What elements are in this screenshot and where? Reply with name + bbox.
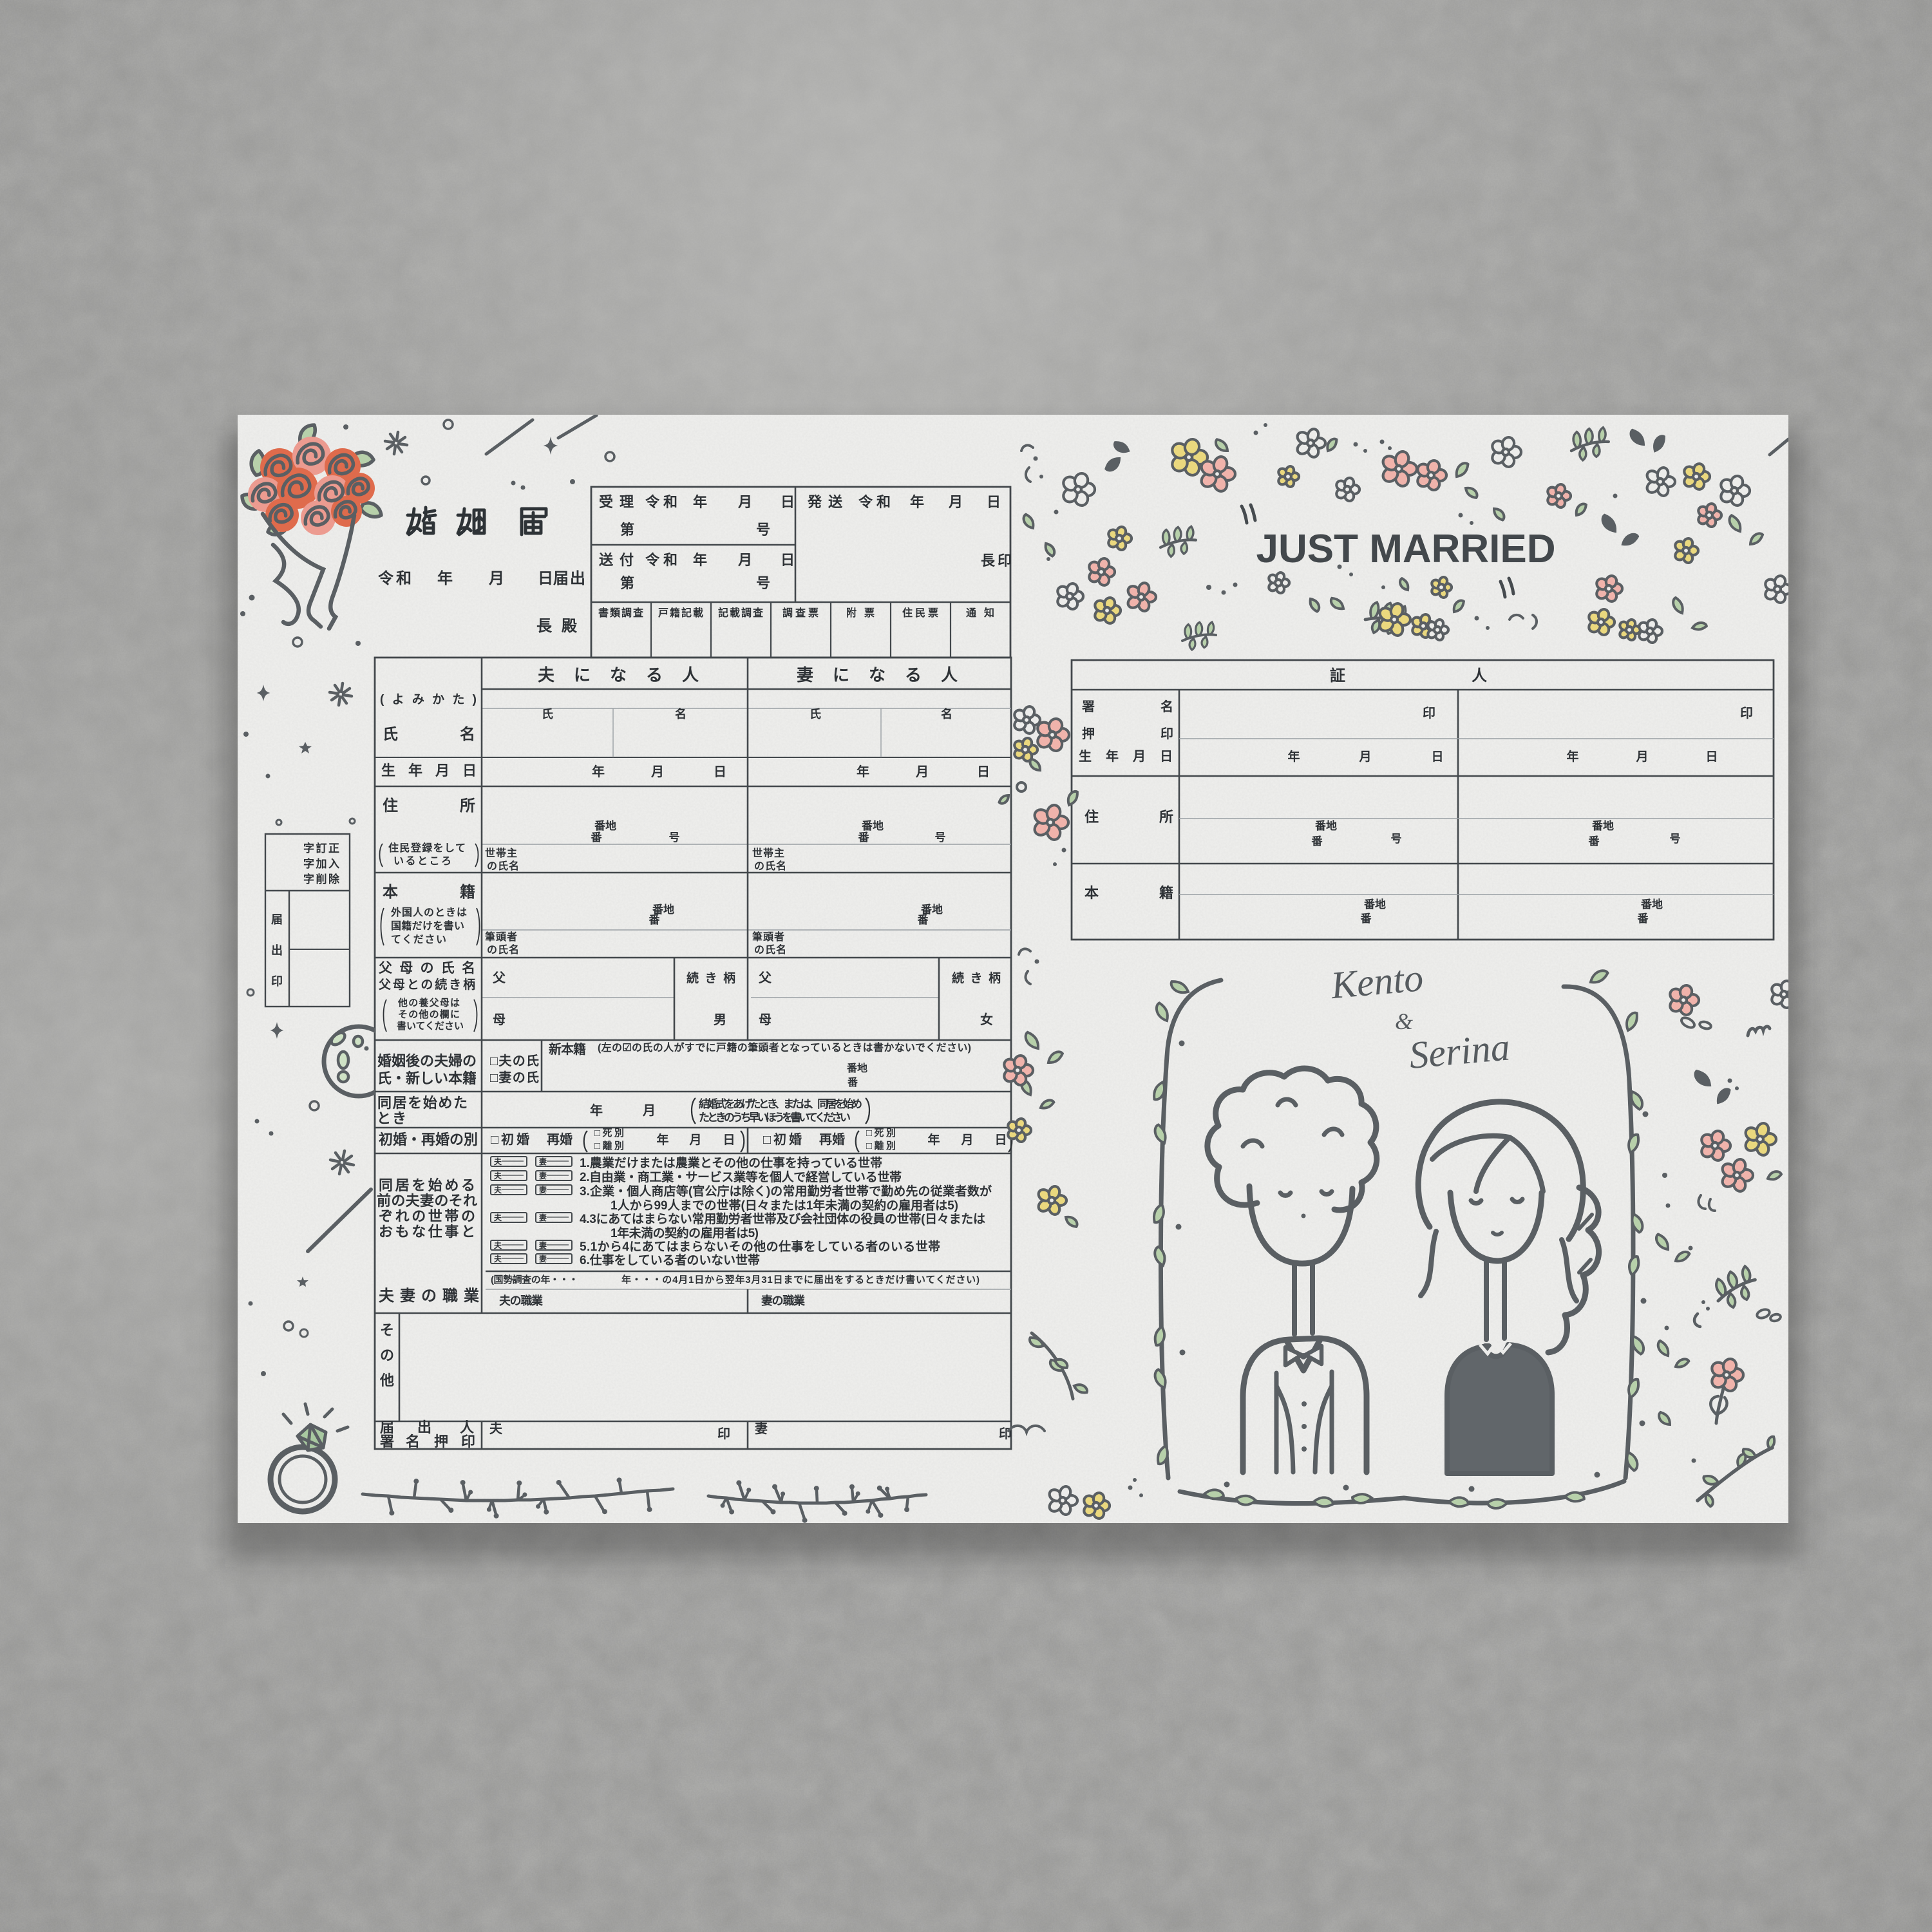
svg-text:押: 押	[434, 1434, 448, 1450]
svg-text:番: 番	[649, 914, 661, 926]
svg-text:押: 押	[1082, 726, 1095, 741]
svg-text:号: 号	[1670, 833, 1681, 845]
svg-text:印: 印	[717, 1426, 730, 1441]
svg-text:年: 年	[857, 764, 869, 779]
svg-text:年: 年	[590, 1103, 603, 1118]
svg-text:母: 母	[493, 1013, 506, 1027]
svg-text:の氏名: の氏名	[754, 943, 786, 956]
svg-text:年: 年	[693, 552, 707, 568]
svg-text:年: 年	[437, 569, 453, 587]
svg-text:日: 日	[781, 494, 795, 510]
svg-text:印: 印	[461, 1434, 475, 1450]
svg-text:4.3にあてはまらない常用勤労者世帯及び会社団体の役員の世帯: 4.3にあてはまらない常用勤労者世帯及び会社団体の役員の世帯(日々または	[580, 1211, 985, 1226]
svg-text:の氏名: の氏名	[754, 860, 786, 872]
svg-text:Serina: Serina	[1407, 1025, 1511, 1076]
svg-text:号: 号	[1391, 833, 1402, 845]
svg-text:籍: 籍	[460, 883, 475, 901]
svg-text:2.自由業・商工業・サービス業等を個人で経営している世帯: 2.自由業・商工業・サービス業等を個人で経営している世帯	[580, 1170, 902, 1184]
svg-text:妻: 妻	[539, 1213, 547, 1222]
svg-text:夫: 夫	[493, 1171, 502, 1180]
svg-text:月: 月	[650, 765, 664, 779]
svg-text:1年未満の契約の雇用者は5): 1年未満の契約の雇用者は5)	[611, 1226, 759, 1240]
svg-text:3.企業・個人商店等(官公庁は除く)の常用勤労者世帯で勤め先: 3.企業・個人商店等(官公庁は除く)の常用勤労者世帯で勤め先の従業者数が	[580, 1184, 992, 1198]
svg-text:妻: 妻	[539, 1157, 547, 1166]
svg-text:月: 月	[688, 1133, 701, 1147]
svg-text:本: 本	[383, 884, 398, 901]
svg-text:月: 月	[642, 1104, 656, 1118]
svg-text:年: 年	[910, 494, 924, 510]
svg-text:籍: 籍	[1159, 885, 1173, 901]
svg-text:結婚式をあげたとき、または、同居を始め: 結婚式をあげたとき、または、同居を始め	[699, 1097, 862, 1110]
svg-text:日: 日	[781, 552, 795, 568]
svg-text:番: 番	[1588, 835, 1600, 848]
svg-text:氏・新しい本籍: 氏・新しい本籍	[377, 1070, 477, 1086]
svg-text:印: 印	[1740, 706, 1753, 721]
svg-text:筆頭者: 筆頭者	[752, 931, 784, 943]
svg-text:日: 日	[1431, 750, 1443, 764]
svg-text:番: 番	[847, 1076, 858, 1088]
svg-text:名: 名	[675, 707, 687, 721]
svg-text:年: 年	[1566, 749, 1578, 764]
svg-text:6.仕事をしている者のいない世帯: 6.仕事をしている者のいない世帯	[580, 1253, 760, 1267]
svg-text:夫: 夫	[493, 1240, 502, 1250]
svg-text:番地: 番地	[861, 819, 884, 832]
svg-text:(左の☑の氏の人がすでに戸籍の筆頭者となっているときは書かな: (左の☑の氏の人がすでに戸籍の筆頭者となっているときは書かないでください)	[598, 1041, 971, 1054]
svg-text:妻: 妻	[539, 1185, 547, 1195]
svg-text:日: 日	[987, 494, 1001, 510]
svg-text:名: 名	[941, 707, 952, 721]
svg-text:本: 本	[1084, 885, 1099, 901]
svg-text:番地: 番地	[594, 819, 616, 832]
svg-text:署: 署	[379, 1434, 394, 1450]
svg-text:夫: 夫	[493, 1254, 502, 1264]
svg-text:5.1から4にあてはまらないその他の仕事をしている者のいる世: 5.1から4にあてはまらないその他の仕事をしている者のいる世帯	[580, 1239, 940, 1254]
svg-text:日: 日	[538, 570, 553, 587]
svg-text:□妻の氏: □妻の氏	[490, 1070, 539, 1085]
svg-text:番: 番	[1311, 835, 1323, 848]
svg-text:名: 名	[406, 1434, 420, 1450]
svg-text:1人から99人までの世帯(日々または1年未満の契約の雇用者は: 1人から99人までの世帯(日々または1年未満の契約の雇用者は5)	[611, 1198, 958, 1213]
svg-text:番地: 番地	[1640, 898, 1663, 911]
svg-text:名: 名	[460, 725, 475, 743]
svg-text:妻: 妻	[539, 1254, 547, 1264]
svg-text:日: 日	[714, 765, 726, 779]
svg-text:Kento: Kento	[1329, 956, 1425, 1007]
svg-text:住: 住	[383, 797, 398, 815]
svg-text:初婚・再婚の別: 初婚・再婚の別	[379, 1132, 478, 1148]
svg-text:印: 印	[1423, 706, 1435, 721]
svg-text:の氏名: の氏名	[487, 860, 519, 872]
svg-text:月: 月	[737, 552, 752, 568]
svg-text:JUST MARRIED: JUST MARRIED	[1256, 527, 1555, 571]
svg-text:母: 母	[759, 1013, 772, 1027]
svg-text:続き柄: 続き柄	[687, 971, 735, 985]
svg-text:妻: 妻	[539, 1240, 547, 1250]
svg-text:字訂正: 字訂正	[303, 842, 339, 855]
svg-text:夫の職業: 夫の職業	[499, 1294, 544, 1307]
svg-text:の: の	[380, 1347, 394, 1363]
svg-text:番地: 番地	[1363, 898, 1386, 911]
svg-text:夫妻の職業: 夫妻の職業	[379, 1287, 479, 1305]
svg-text:□死別: □死別	[594, 1128, 624, 1139]
svg-text:日: 日	[977, 765, 990, 779]
svg-text:日: 日	[723, 1133, 735, 1147]
svg-text:署: 署	[1082, 699, 1095, 714]
svg-text:名: 名	[1160, 699, 1173, 714]
svg-text:住民登録をして: 住民登録をして	[388, 842, 466, 854]
svg-text:番: 番	[1637, 913, 1649, 925]
svg-text:氏: 氏	[542, 708, 553, 721]
svg-text:月: 月	[1358, 750, 1371, 764]
svg-text:字削除: 字削除	[303, 873, 340, 885]
svg-text:書いてください: 書いてください	[397, 1020, 464, 1032]
svg-text:番: 番	[1360, 913, 1372, 925]
svg-text:年: 年	[693, 494, 707, 510]
svg-text:所: 所	[460, 797, 475, 815]
svg-text:字加入: 字加入	[303, 857, 339, 870]
svg-text:月: 月	[948, 494, 963, 510]
svg-text:号: 号	[669, 831, 680, 844]
svg-text:書類調査: 書類調査	[598, 607, 643, 619]
svg-text:再婚: 再婚	[819, 1132, 845, 1147]
svg-text:たときのうち早いほうを書いてください: たときのうち早いほうを書いてください	[699, 1111, 851, 1124]
svg-text:殿: 殿	[561, 618, 578, 635]
svg-text:妻: 妻	[539, 1171, 547, 1180]
svg-text:年: 年	[592, 764, 605, 779]
svg-text:番: 番	[591, 831, 603, 844]
svg-text:その他の欄に: その他の欄に	[398, 1009, 460, 1020]
svg-text:戸籍記載: 戸籍記載	[658, 607, 703, 619]
svg-text:年: 年	[1287, 749, 1300, 764]
svg-text:□離別: □離別	[594, 1140, 624, 1151]
svg-text:第: 第	[620, 522, 634, 538]
svg-text:再婚: 再婚	[547, 1132, 573, 1147]
svg-text:夫: 夫	[493, 1185, 502, 1195]
svg-text:夫: 夫	[493, 1157, 502, 1166]
svg-text:同居を始めた: 同居を始めた	[377, 1095, 468, 1111]
svg-text:月: 月	[915, 765, 929, 779]
svg-text:□死別: □死別	[866, 1128, 896, 1139]
svg-text:印: 印	[271, 975, 283, 988]
svg-text:年・・・の4月1日から翌年3月31日までに届出をするときだけ: 年・・・の4月1日から翌年3月31日までに届出をするときだけ書いてください)	[621, 1274, 980, 1285]
svg-text:調査票: 調査票	[782, 607, 819, 619]
svg-text:てください: てください	[391, 934, 446, 945]
svg-text:日: 日	[1705, 750, 1718, 764]
svg-text:番地: 番地	[1314, 819, 1337, 832]
svg-text:いるところ: いるところ	[393, 855, 451, 867]
svg-text:番: 番	[917, 914, 929, 926]
svg-text:月: 月	[737, 494, 752, 510]
svg-text:1.農業だけまたは農業とその他の仕事を持っている世帯: 1.農業だけまたは農業とその他の仕事を持っている世帯	[580, 1155, 882, 1170]
svg-text:年: 年	[656, 1132, 668, 1147]
svg-text:人: 人	[1472, 667, 1487, 685]
svg-text:妻: 妻	[755, 1421, 768, 1436]
svg-text:筆頭者: 筆頭者	[485, 931, 517, 943]
svg-text:月: 月	[1635, 750, 1648, 764]
svg-text:番地: 番地	[846, 1062, 867, 1074]
svg-text:とき: とき	[377, 1110, 406, 1126]
svg-text:外国人のときは: 外国人のときは	[390, 906, 467, 918]
svg-text:□離別: □離別	[866, 1140, 896, 1151]
svg-text:住: 住	[1084, 809, 1099, 825]
svg-text:番地: 番地	[1591, 819, 1614, 832]
svg-text:住民票: 住民票	[902, 607, 938, 619]
svg-text:月: 月	[960, 1133, 973, 1147]
svg-text:女: 女	[980, 1012, 993, 1027]
svg-text:□夫の氏: □夫の氏	[490, 1053, 539, 1068]
svg-text:届: 届	[271, 913, 283, 926]
svg-text:□初婚: □初婚	[763, 1132, 802, 1147]
svg-text:号: 号	[756, 522, 770, 538]
svg-text:号: 号	[756, 575, 770, 591]
svg-text:日: 日	[994, 1133, 1007, 1147]
svg-text:印: 印	[1160, 726, 1173, 741]
svg-text:男: 男	[714, 1013, 726, 1027]
svg-text:そ: そ	[380, 1322, 394, 1338]
svg-text:の氏名: の氏名	[487, 943, 519, 956]
svg-text:(国勢調査の年・・・: (国勢調査の年・・・	[491, 1274, 578, 1285]
svg-text:父母との続き柄: 父母との続き柄	[378, 977, 475, 992]
svg-text:年: 年	[927, 1132, 940, 1147]
svg-text:氏: 氏	[383, 726, 398, 743]
svg-text:世帯主: 世帯主	[485, 847, 517, 859]
svg-text:前の夫妻のそれ: 前の夫妻のそれ	[377, 1193, 477, 1209]
svg-text:月: 月	[488, 570, 504, 587]
svg-text:□初婚: □初婚	[491, 1132, 529, 1147]
svg-text:長: 長	[536, 618, 553, 635]
svg-text:&: &	[1395, 1009, 1413, 1034]
svg-text:父: 父	[492, 971, 506, 985]
svg-text:婚姻後の夫婦の: 婚姻後の夫婦の	[377, 1053, 477, 1069]
svg-text:新本籍: 新本籍	[549, 1041, 586, 1057]
svg-text:続き柄: 続き柄	[952, 971, 1001, 985]
svg-text:証: 証	[1330, 667, 1345, 685]
svg-text:国籍だけを書い: 国籍だけを書い	[391, 920, 464, 932]
svg-text:世帯主: 世帯主	[752, 847, 784, 859]
svg-text:他: 他	[379, 1372, 394, 1388]
svg-text:夫: 夫	[489, 1421, 503, 1436]
svg-text:番: 番	[858, 831, 870, 844]
svg-text:父: 父	[758, 971, 772, 985]
svg-text:所: 所	[1159, 809, 1173, 825]
svg-text:記載調査: 記載調査	[718, 607, 763, 619]
svg-text:氏: 氏	[810, 708, 821, 721]
svg-text:夫: 夫	[493, 1213, 502, 1222]
svg-text:妻の職業: 妻の職業	[761, 1294, 806, 1307]
svg-text:出: 出	[271, 943, 283, 957]
svg-text:号: 号	[935, 831, 946, 844]
svg-text:第: 第	[620, 575, 634, 591]
